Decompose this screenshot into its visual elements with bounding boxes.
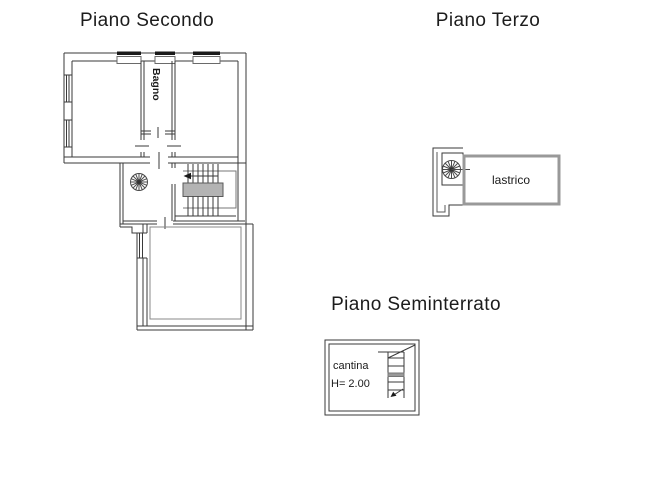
main-staircase (175, 164, 236, 216)
cellar-staircase (378, 345, 415, 398)
stair-landing (388, 373, 404, 377)
piano-secondo-plan: Bagno (64, 52, 253, 331)
lower-room-window (137, 233, 147, 258)
cantina-label: cantina (333, 360, 369, 372)
piano-seminterrato-plan: cantina H= 2.00 (325, 340, 419, 415)
window-bar-icon (117, 52, 141, 56)
lower-room-walls (137, 224, 253, 330)
window-bar-icon (193, 52, 220, 56)
spiral-staircase-icon (131, 174, 148, 191)
left-windows (65, 75, 72, 147)
stair-treads-lower (188, 197, 218, 217)
piano-terzo-plan: lastrico (433, 148, 559, 216)
floorplan-page: Piano Secondo Piano Terzo Piano Seminter… (0, 0, 648, 492)
top-windows (117, 52, 220, 64)
floor-plan-drawing: Bagno (0, 0, 648, 492)
stair-treads-upper (188, 164, 218, 183)
room-inner-outline (150, 227, 241, 319)
bagno-label: Bagno (150, 68, 162, 101)
cantina-height-label: H= 2.00 (331, 378, 370, 390)
window-bar-icon (155, 52, 175, 56)
stair-landing (183, 183, 223, 197)
stair-tower-walls (433, 148, 463, 216)
spiral-staircase-icon (443, 161, 471, 179)
lastrico-label: lastrico (492, 173, 530, 187)
